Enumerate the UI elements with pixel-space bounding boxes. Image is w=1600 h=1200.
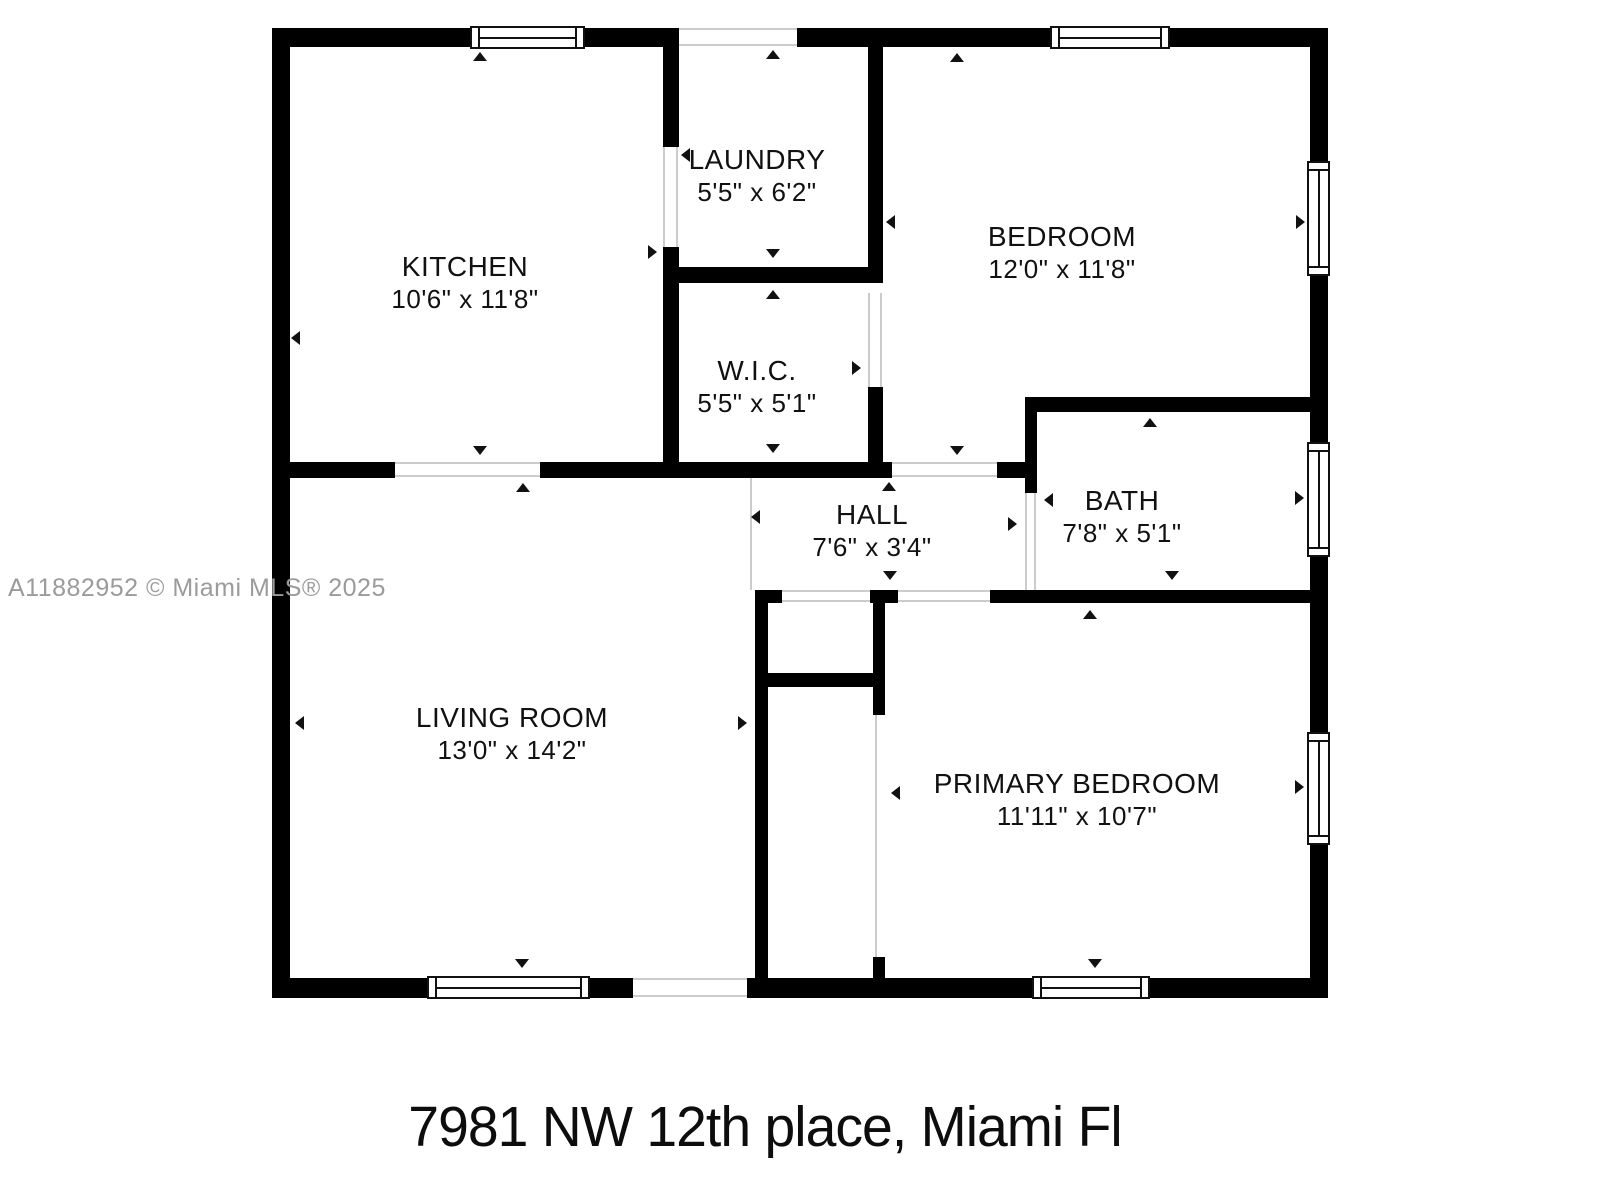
window	[1307, 732, 1330, 845]
direction-marker-icon	[1295, 780, 1304, 794]
wall	[272, 978, 427, 998]
room-label-wic: W.I.C. 5'5" x 5'1"	[697, 355, 816, 419]
room-name: W.I.C.	[697, 355, 816, 387]
wall	[663, 47, 679, 147]
room-label-laundry: LAUNDRY 5'5" x 6'2"	[689, 144, 826, 208]
door-opening-line	[1025, 493, 1027, 590]
door-opening-line	[679, 28, 797, 30]
direction-marker-icon	[1044, 493, 1053, 507]
direction-marker-icon	[648, 245, 657, 259]
direction-marker-icon	[1008, 517, 1017, 531]
direction-marker-icon	[295, 716, 304, 730]
door-opening-line	[782, 590, 870, 592]
direction-marker-icon	[1295, 491, 1304, 505]
room-name: LAUNDRY	[689, 144, 826, 176]
wall	[768, 673, 885, 687]
wall	[272, 28, 290, 998]
direction-marker-icon	[766, 290, 780, 299]
wall	[585, 28, 679, 47]
direction-marker-icon	[950, 53, 964, 62]
wall	[290, 462, 395, 478]
direction-marker-icon	[473, 52, 487, 61]
door-opening-line	[633, 978, 747, 980]
window	[1032, 976, 1150, 999]
room-dimensions: 7'8" x 5'1"	[1062, 517, 1181, 549]
room-name: HALL	[812, 499, 931, 531]
direction-marker-icon	[1143, 418, 1157, 427]
room-dimensions: 10'6" x 11'8"	[391, 283, 538, 315]
room-label-living-room: LIVING ROOM 13'0" x 14'2"	[416, 702, 608, 766]
mls-watermark: A11882952 © Miami MLS® 2025	[8, 574, 386, 603]
room-label-primary-bedroom: PRIMARY BEDROOM 11'11" x 10'7"	[934, 768, 1221, 832]
room-label-bath: BATH 7'8" x 5'1"	[1062, 485, 1181, 549]
room-dimensions: 7'6" x 3'4"	[812, 531, 931, 563]
window	[1307, 161, 1330, 276]
direction-marker-icon	[516, 483, 530, 492]
room-label-hall: HALL 7'6" x 3'4"	[812, 499, 931, 563]
wall	[1025, 397, 1310, 412]
direction-marker-icon	[738, 716, 747, 730]
wall	[1310, 557, 1328, 732]
wall	[1310, 845, 1328, 998]
door-opening-line	[633, 995, 747, 997]
door-opening-line	[898, 590, 990, 592]
wall	[540, 462, 892, 478]
room-name: BEDROOM	[988, 221, 1136, 253]
room-label-bedroom: BEDROOM 12'0" x 11'8"	[988, 221, 1136, 285]
room-dimensions: 5'5" x 6'2"	[689, 176, 826, 208]
wall	[272, 28, 470, 47]
wall	[1310, 28, 1328, 161]
direction-marker-icon	[950, 446, 964, 455]
room-dimensions: 5'5" x 5'1"	[697, 387, 816, 419]
floorplan-page: { "floorplan": { "watermark": "A11882952…	[0, 0, 1600, 1200]
room-boundary-line	[875, 715, 877, 957]
direction-marker-icon	[886, 215, 895, 229]
window	[427, 976, 590, 999]
door-opening-line	[868, 293, 870, 387]
direction-marker-icon	[751, 510, 760, 524]
wall	[663, 267, 883, 283]
door-opening-line	[782, 600, 870, 602]
direction-marker-icon	[882, 482, 896, 491]
door-opening-line	[892, 475, 997, 477]
wall	[755, 592, 768, 978]
room-name: PRIMARY BEDROOM	[934, 768, 1221, 800]
window	[1050, 26, 1170, 49]
wall	[590, 978, 633, 998]
window	[1307, 442, 1330, 557]
window	[470, 26, 585, 49]
floorplan-canvas: KITCHEN 10'6" x 11'8" LAUNDRY 5'5" x 6'2…	[0, 0, 1600, 1200]
wall	[990, 590, 1310, 603]
room-dimensions: 13'0" x 14'2"	[416, 734, 608, 766]
room-dimensions: 12'0" x 11'8"	[988, 253, 1136, 285]
room-name: BATH	[1062, 485, 1181, 517]
direction-marker-icon	[891, 786, 900, 800]
room-boundary-line	[750, 478, 752, 590]
direction-marker-icon	[1296, 215, 1305, 229]
direction-marker-icon	[1088, 959, 1102, 968]
door-opening-line	[676, 147, 678, 247]
door-opening-line	[898, 600, 990, 602]
room-label-kitchen: KITCHEN 10'6" x 11'8"	[391, 251, 538, 315]
direction-marker-icon	[883, 571, 897, 580]
wall	[873, 957, 885, 978]
direction-marker-icon	[515, 959, 529, 968]
direction-marker-icon	[766, 444, 780, 453]
door-opening-line	[1034, 493, 1036, 590]
door-opening-line	[395, 462, 540, 464]
door-opening-line	[679, 44, 797, 46]
wall	[1025, 397, 1037, 493]
door-opening-line	[395, 475, 540, 477]
direction-marker-icon	[473, 446, 487, 455]
room-name: KITCHEN	[391, 251, 538, 283]
door-opening-line	[663, 147, 665, 247]
door-opening-line	[880, 293, 882, 387]
direction-marker-icon	[766, 50, 780, 59]
direction-marker-icon	[1165, 571, 1179, 580]
property-address-title: 7981 NW 12th place, Miami Fl	[408, 1094, 1121, 1160]
wall	[1170, 28, 1328, 47]
door-opening-line	[892, 462, 997, 464]
room-dimensions: 11'11" x 10'7"	[934, 800, 1221, 832]
wall	[873, 592, 885, 715]
room-name: LIVING ROOM	[416, 702, 608, 734]
wall	[1150, 978, 1328, 998]
wall	[747, 978, 1032, 998]
wall	[1310, 276, 1328, 442]
wall	[868, 47, 883, 283]
direction-marker-icon	[766, 249, 780, 258]
direction-marker-icon	[852, 361, 861, 375]
wall	[797, 28, 1050, 47]
direction-marker-icon	[1083, 610, 1097, 619]
direction-marker-icon	[291, 331, 300, 345]
